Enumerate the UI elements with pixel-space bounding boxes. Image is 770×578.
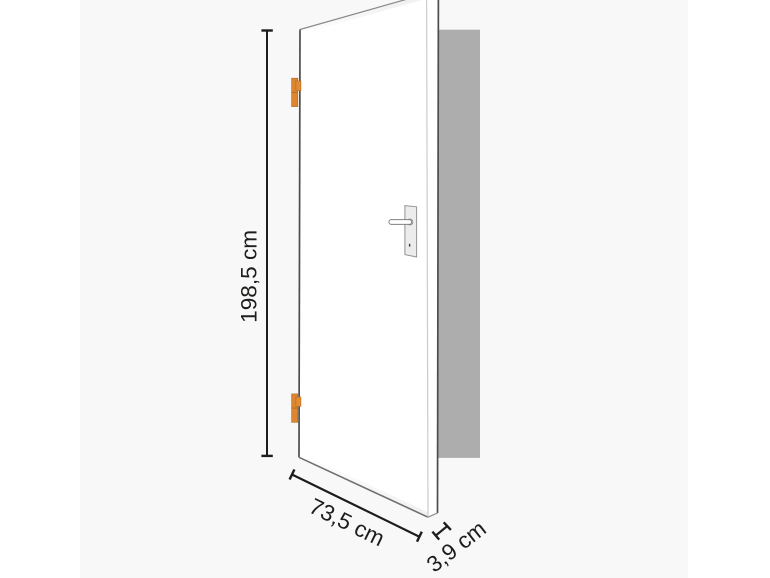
svg-text:198,5 cm: 198,5 cm <box>236 230 261 323</box>
